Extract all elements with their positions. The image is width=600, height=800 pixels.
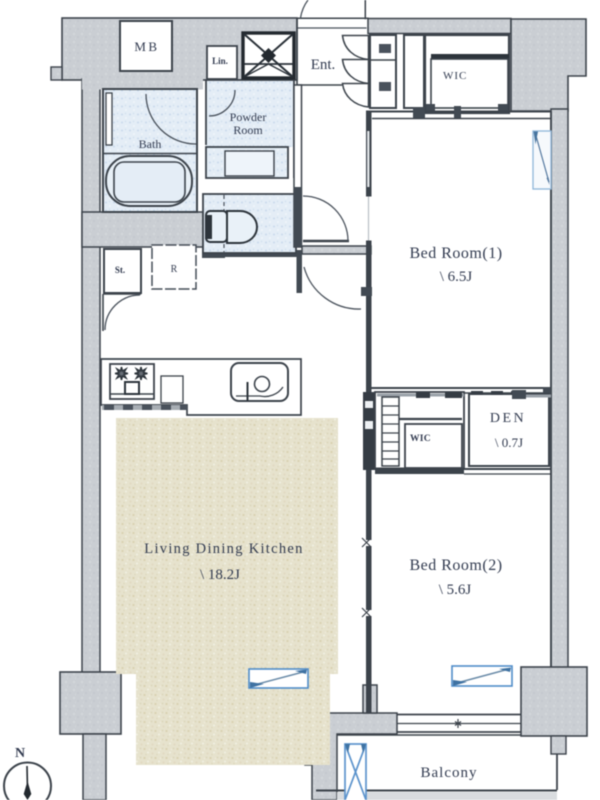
svg-text:Lin.: Lin. [212, 56, 228, 66]
svg-text:Room: Room [233, 123, 263, 137]
svg-text:Powder: Powder [230, 110, 267, 124]
svg-text:MB: MB [134, 39, 159, 54]
svg-text:DEN: DEN [490, 411, 526, 426]
svg-text:WIC: WIC [410, 434, 431, 444]
svg-text:Bed Room(1): Bed Room(1) [409, 245, 502, 262]
svg-text:Living Dining Kitchen: Living Dining Kitchen [144, 541, 303, 557]
svg-text:R: R [171, 264, 178, 275]
svg-text:St.: St. [115, 265, 125, 275]
svg-text:Bed Room(2): Bed Room(2) [409, 557, 502, 574]
svg-text:Ent.: Ent. [311, 57, 336, 73]
svg-text:\ 0.7J: \ 0.7J [495, 435, 523, 450]
svg-text:Bath: Bath [139, 137, 162, 151]
svg-text:N: N [15, 746, 25, 761]
svg-text:Balcony: Balcony [421, 765, 478, 781]
svg-text:WIC: WIC [443, 70, 467, 82]
svg-text:\ 6.5J: \ 6.5J [440, 269, 473, 285]
svg-text:\ 5.6J: \ 5.6J [439, 582, 472, 598]
svg-text:\ 18.2J: \ 18.2J [200, 567, 240, 583]
